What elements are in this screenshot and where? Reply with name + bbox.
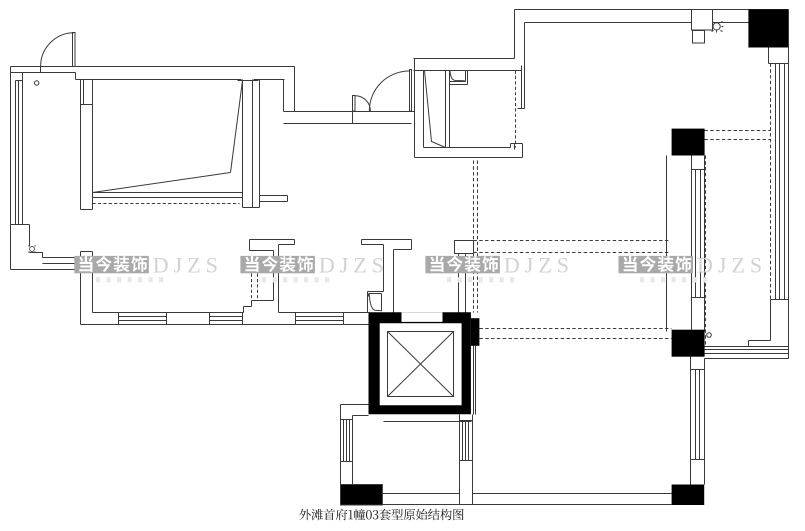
svg-text:DJZS: DJZS — [153, 253, 223, 278]
svg-text:DJZS: DJZS — [697, 253, 767, 278]
svg-text:DJZS: DJZS — [319, 253, 389, 278]
svg-text:DJZS: DJZS — [504, 253, 574, 278]
